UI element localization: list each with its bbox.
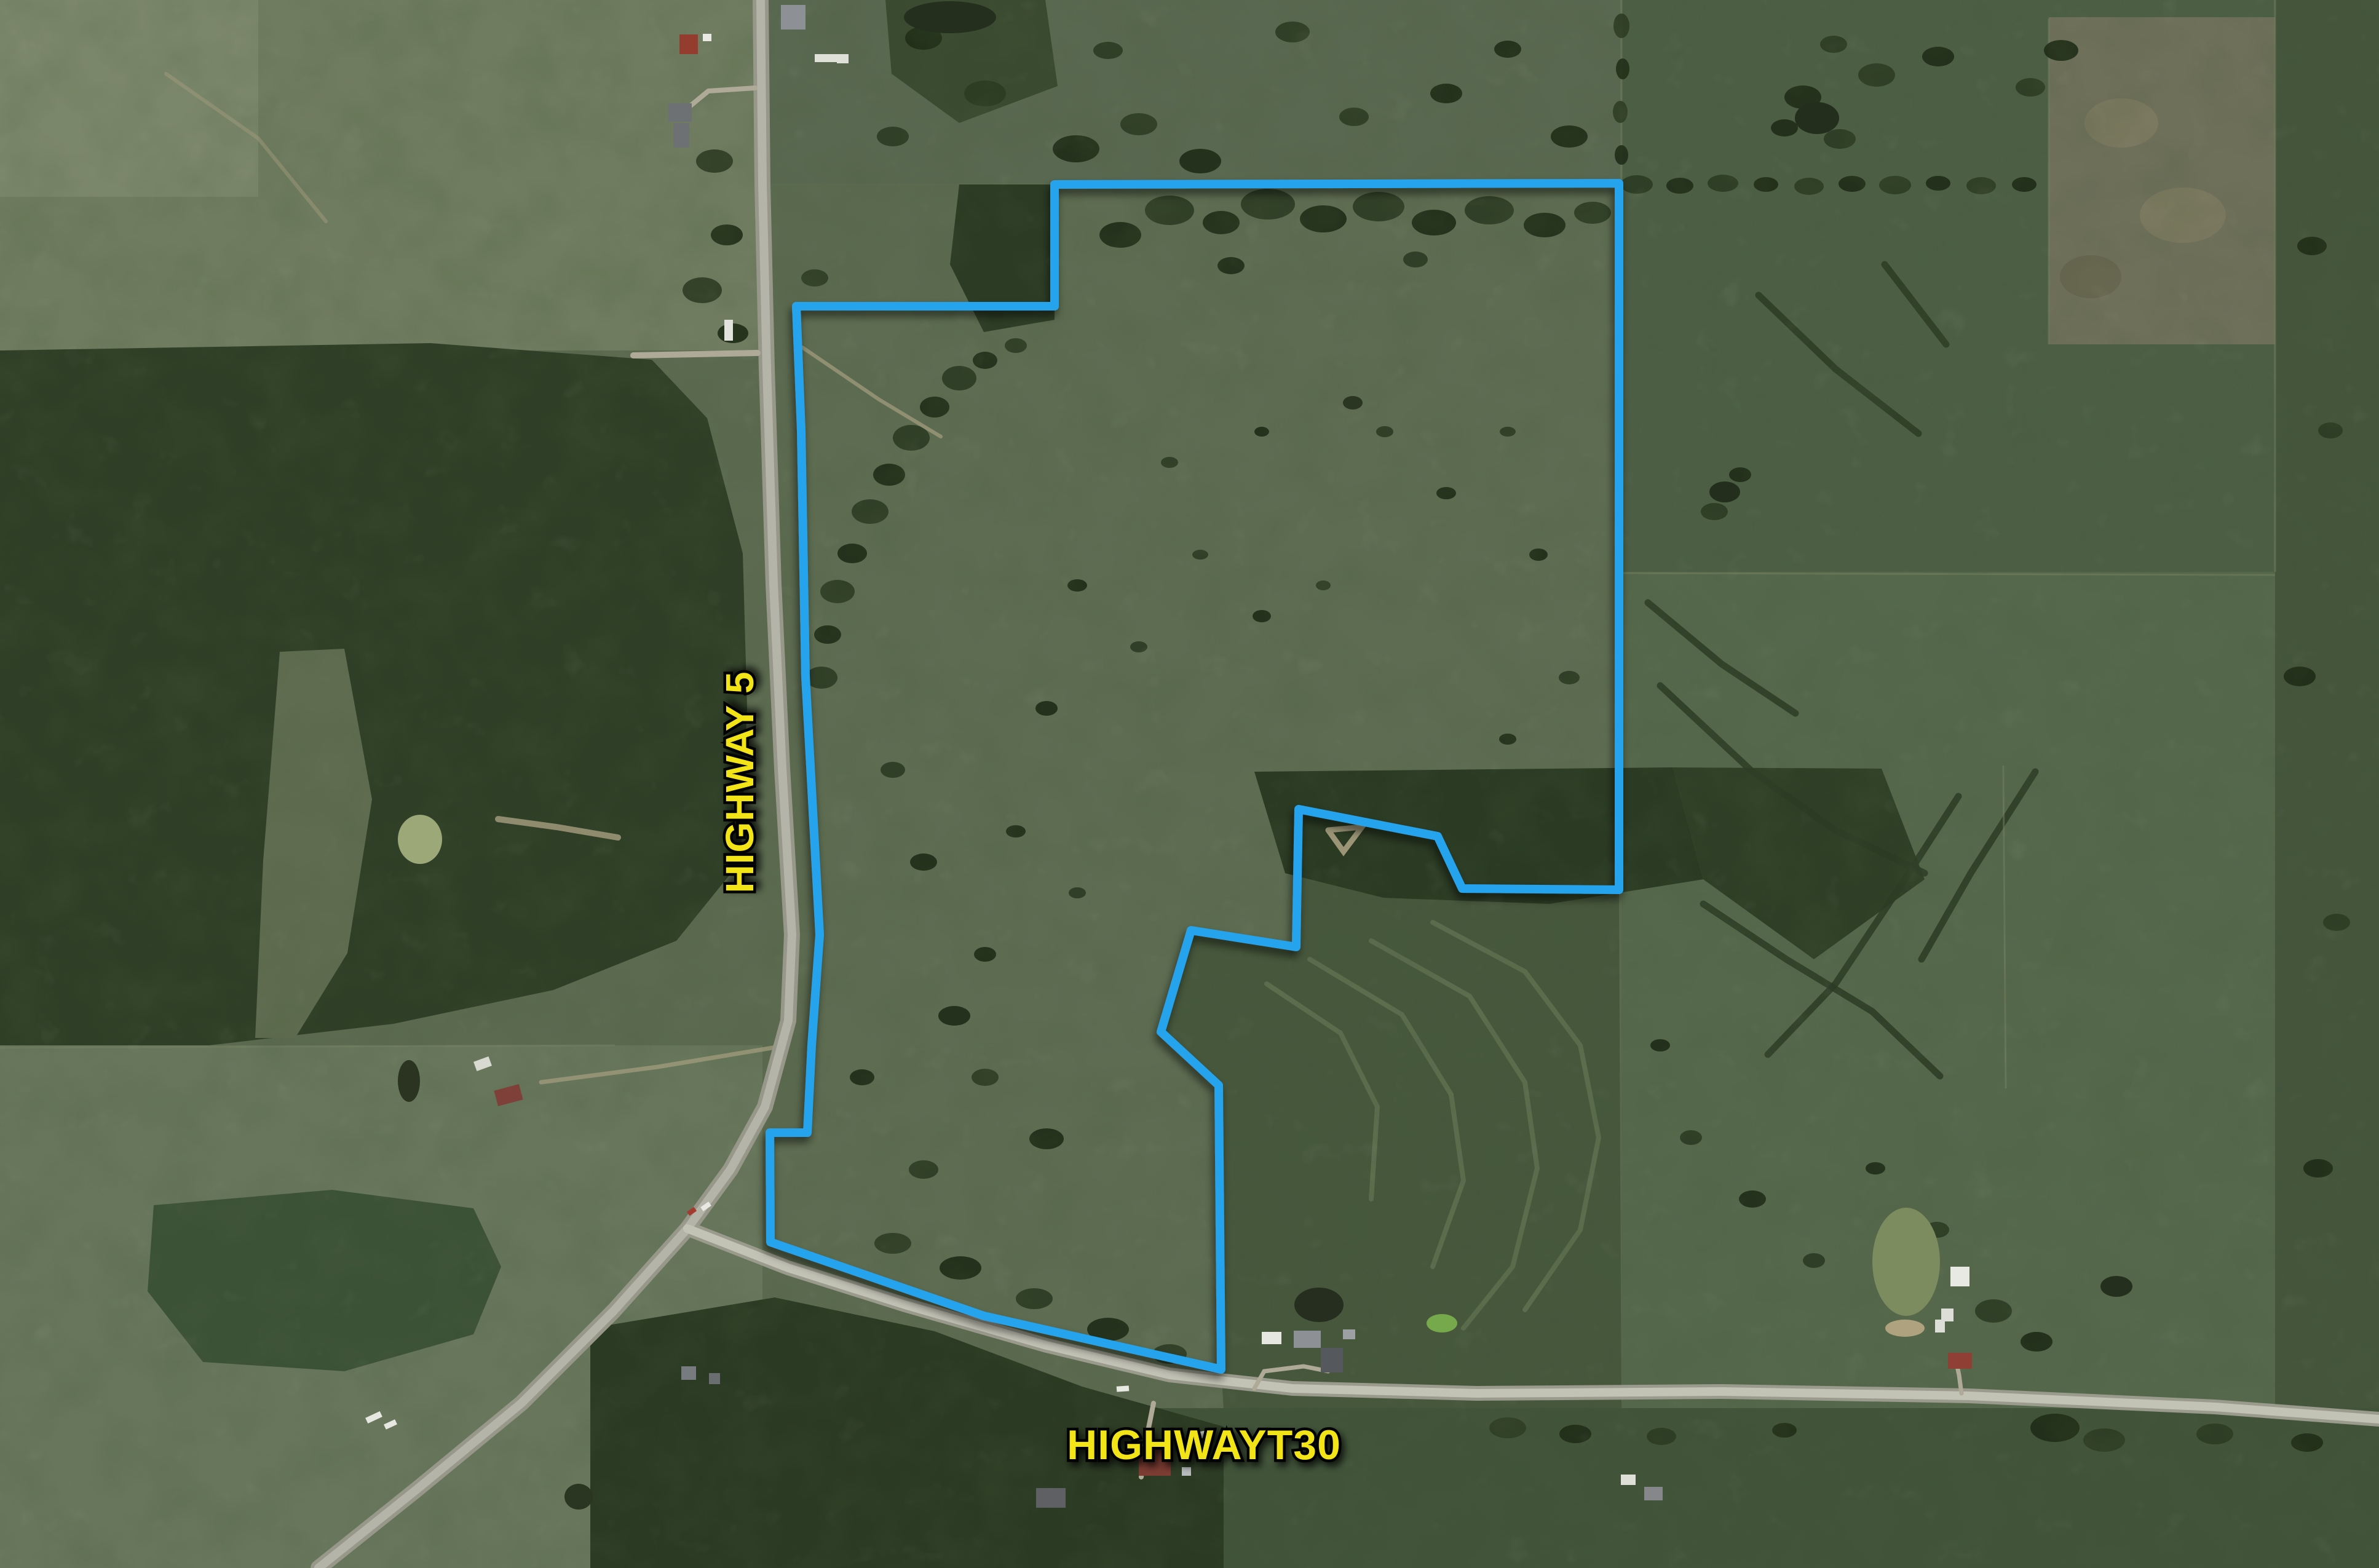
shed [1935,1320,1945,1332]
barn [1262,1332,1281,1344]
shed [1941,1309,1953,1321]
pond [1427,1314,1457,1332]
barn [1950,1267,1969,1286]
barn [679,34,698,54]
pond [398,815,442,864]
pond [1294,1288,1344,1322]
house [781,5,806,30]
highway-t30-label: HIGHWAYT30 [1067,1422,1341,1468]
house [1621,1475,1636,1485]
pond [2100,1276,2132,1297]
tank [1182,1467,1191,1476]
highway-5-label: HIGHWAY 5 [718,671,762,893]
barn [1036,1488,1066,1508]
pond [1709,481,1740,502]
terrain-noise-light [0,0,2379,1568]
barn [1644,1487,1663,1500]
pond [1795,102,1839,134]
pond [398,1060,420,1102]
shed [815,54,837,62]
pond [1343,396,1363,410]
sand-bank [1885,1320,1925,1337]
house [1321,1348,1343,1372]
house [709,1373,720,1384]
shed [703,34,711,41]
aerial-map: HIGHWAY 5 HIGHWAYT30 [0,0,2379,1568]
aerial-map-viewport: HIGHWAY 5 HIGHWAYT30 [0,0,2379,1568]
barn [1294,1331,1321,1348]
vehicle [1117,1385,1130,1392]
house [1948,1353,1972,1369]
pond [1872,1208,1940,1316]
house [681,1366,696,1380]
pond [564,1484,593,1510]
pond [904,1,996,33]
terrain-layer [0,0,2379,1568]
shed [1343,1329,1355,1339]
shed [837,54,849,63]
driveway [633,353,758,355]
house [668,103,692,122]
shed [724,320,733,341]
house [673,123,689,148]
